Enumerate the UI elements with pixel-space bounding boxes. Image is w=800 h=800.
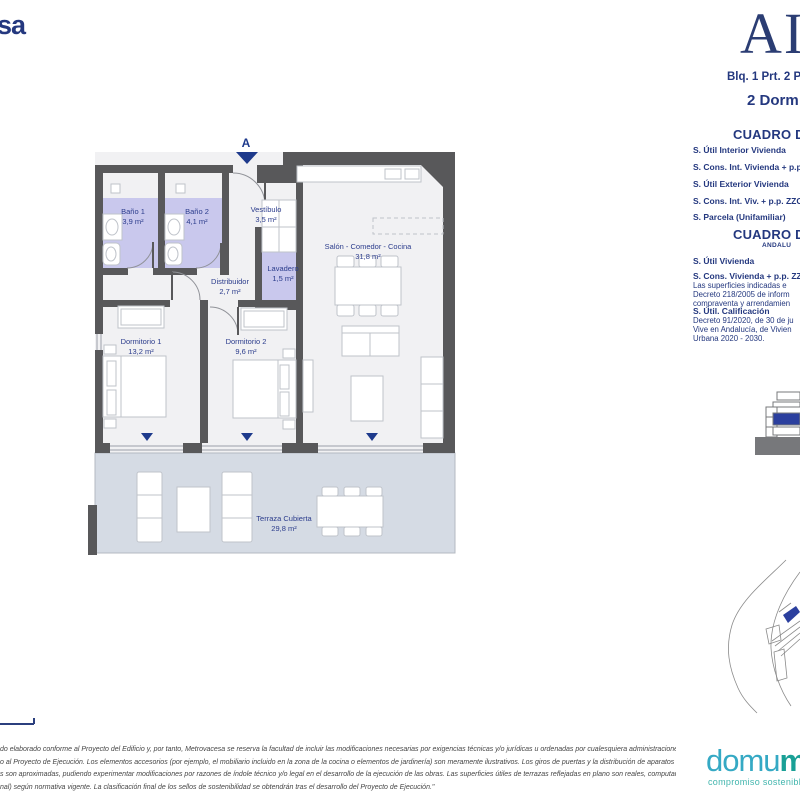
- pillow: [280, 392, 289, 416]
- disclaimer-line: nal) según normativa vigente. La clasifi…: [0, 782, 676, 795]
- legal-note-line: Decreto 91/2020, de 30 de ju: [693, 316, 794, 325]
- chair: [344, 527, 360, 536]
- surface-row: S. Útil. Calificación: [693, 306, 770, 316]
- legal-note-line: Las superficies indicadas e: [693, 281, 787, 290]
- surfaces-table2-subtitle: ANDALU: [762, 242, 791, 249]
- chair: [366, 527, 382, 536]
- room-label-lavadero: Lavadero 1,5 m²: [267, 264, 298, 284]
- room-area: 13,2 m²: [121, 347, 162, 357]
- floor-plan-drawing: [0, 0, 800, 800]
- room-name: Distribuidor: [211, 277, 249, 287]
- pillow: [107, 361, 116, 386]
- kitchen-counter: [297, 166, 421, 182]
- disclaimer-block: do elaborado conforme al Proyecto del Ed…: [0, 744, 676, 794]
- outdoor-sofa: [222, 472, 252, 542]
- chair: [344, 487, 360, 496]
- surface-row: S. Útil Vivienda: [693, 256, 754, 266]
- nightstand: [104, 345, 116, 354]
- section-marker-label: A: [242, 136, 251, 150]
- surface-row: S. Cons. Int. Vivienda + p.p.: [693, 162, 800, 172]
- disclaimer-line: do elaborado conforme al Proyecto del Ed…: [0, 744, 676, 757]
- chair: [337, 305, 354, 316]
- room-name: Salón - Comedor - Cocina: [325, 242, 412, 252]
- room-name: Terraza Cubierta: [256, 514, 311, 524]
- domum-logo-bold: m: [780, 743, 800, 778]
- room-area: 1,5 m²: [267, 274, 298, 284]
- room-area: 9,6 m²: [226, 347, 267, 357]
- room-label-bano2: Baño 2 4,1 m²: [185, 207, 209, 227]
- dining-table: [335, 267, 401, 305]
- room-name: Lavadero: [267, 264, 298, 274]
- chair: [359, 305, 376, 316]
- surface-row: S. Parcela (Unifamiliar): [693, 212, 786, 222]
- pillow: [107, 390, 116, 415]
- floor-plan-sheet: { "header": { "brand_partial": "sa", "pr…: [0, 0, 800, 800]
- room-area: 2,7 m²: [211, 287, 249, 297]
- domum-tagline: compromiso sostenible: [708, 777, 800, 787]
- room-area: 29,8 m²: [256, 524, 311, 534]
- surface-row: S. Cons. Int. Viv. + p.p. ZZC: [693, 196, 800, 206]
- metrovacesa-logo-partial: sa: [0, 10, 25, 41]
- room-name: Dormitorio 2: [226, 337, 267, 347]
- room-label-terraza: Terraza Cubierta 29,8 m²: [256, 514, 311, 534]
- surfaces-table-title: CUADRO DE: [733, 127, 800, 142]
- legal-note-line: Urbana 2020 - 2030.: [693, 334, 765, 343]
- unit-type: 2 Dorm: [747, 92, 799, 109]
- disclaimer-line: s son aproximadas, pudiendo experimentar…: [0, 769, 676, 782]
- nightstand: [283, 420, 295, 429]
- surfaces-table2-title: CUADRO DE: [733, 227, 800, 242]
- domum-logo: domum: [706, 743, 800, 779]
- nightstand: [283, 349, 295, 358]
- outdoor-table: [177, 487, 210, 532]
- room-label-distribuidor: Distribuidor 2,7 m²: [211, 277, 249, 297]
- legal-note-line: Vive en Andalucía, de Vivien: [693, 325, 792, 334]
- shower-symbol: [111, 184, 120, 193]
- room-area: 4,1 m²: [185, 217, 209, 227]
- room-label-dormitorio1: Dormitorio 1 13,2 m²: [121, 337, 162, 357]
- room-name: Baño 2: [185, 207, 209, 217]
- sideboard: [421, 357, 443, 438]
- legal-note-line: Decreto 218/2005 de inform: [693, 290, 790, 299]
- site-plan-icon: [728, 560, 800, 713]
- room-name: Baño 1: [121, 207, 145, 217]
- project-logo-partial: AIR: [740, 0, 800, 67]
- chair: [322, 527, 338, 536]
- chair: [381, 305, 398, 316]
- surface-row: S. Cons. Vivienda + p.p. ZZ: [693, 271, 800, 281]
- room-label-bano1: Baño 1 3,9 m²: [121, 207, 145, 227]
- room-name: Vestíbulo: [251, 205, 282, 215]
- shower-symbol: [176, 184, 185, 193]
- outdoor-dining-table: [317, 496, 383, 527]
- room-label-vestibulo: Vestíbulo 3,5 m²: [251, 205, 282, 225]
- scale-bar-icon: [0, 718, 34, 724]
- unit-location-highlight: [783, 606, 800, 623]
- chair: [322, 487, 338, 496]
- terrace-pillar: [88, 505, 97, 555]
- chair: [366, 487, 382, 496]
- room-label-salon: Salón - Comedor - Cocina 31,8 m²: [325, 242, 412, 262]
- cabinet: [303, 360, 313, 412]
- room-area: 3,9 m²: [121, 217, 145, 227]
- pillow: [280, 365, 289, 389]
- room-area: 31,8 m²: [325, 252, 412, 262]
- nightstand: [104, 419, 116, 428]
- disclaimer-line: o al Proyecto de Ejecución. Los elemento…: [0, 757, 676, 770]
- unit-reference: Blq. 1 Prt. 2 P: [727, 71, 800, 83]
- surface-row: S. Útil Exterior Vivienda: [693, 179, 789, 189]
- room-name: Dormitorio 1: [121, 337, 162, 347]
- domum-logo-light: domu: [706, 743, 780, 778]
- outdoor-sofa: [137, 472, 162, 542]
- surface-row: S. Útil Interior Vivienda: [693, 145, 786, 155]
- room-area: 3,5 m²: [251, 215, 282, 225]
- building-section-icon: [755, 392, 800, 455]
- coffee-table: [351, 376, 383, 421]
- room-label-dormitorio2: Dormitorio 2 9,6 m²: [226, 337, 267, 357]
